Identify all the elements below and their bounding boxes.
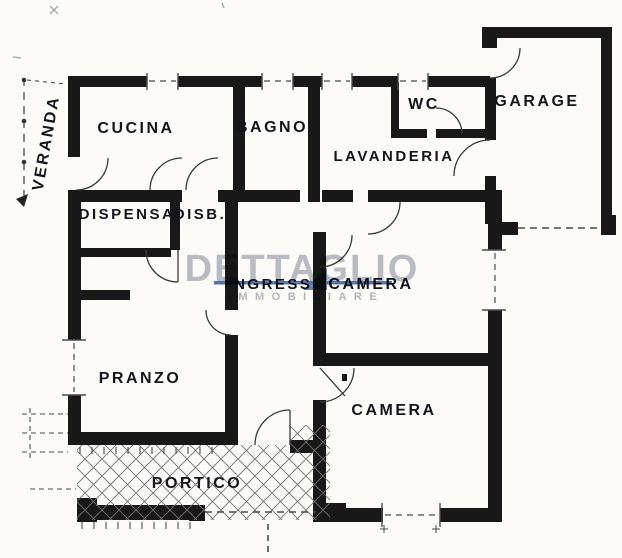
room-label-garage: GARAGE [494, 93, 579, 110]
room-label-pranzo: PRANZO [99, 370, 182, 387]
room-label-camera-2: CAMERA [351, 402, 436, 419]
room-label-dispensa: DISPENSA [79, 206, 176, 223]
room-label-wc: WC [408, 96, 440, 113]
room-label-bagno: BAGNO [236, 119, 308, 136]
floor-plan-drawing: VERANDA CUCINA BAGNO WC GARAGE LAVANDERI… [0, 0, 622, 558]
room-label-cucina: CUCINA [97, 120, 174, 137]
scan-noise [13, 3, 224, 58]
floor-plan-page: VERANDA CUCINA BAGNO WC GARAGE LAVANDERI… [0, 0, 622, 558]
room-label-disb: DISB. [174, 206, 227, 223]
watermark-underline [214, 281, 392, 285]
room-label-veranda: VERANDA [30, 94, 64, 192]
agency-watermark: DETTAGLIO IMMOBILIARE [185, 248, 420, 303]
room-label-portico: PORTICO [152, 475, 242, 492]
room-label-lavanderia: LAVANDERIA [333, 148, 454, 165]
watermark-subtitle: IMMOBILIARE [228, 291, 384, 303]
